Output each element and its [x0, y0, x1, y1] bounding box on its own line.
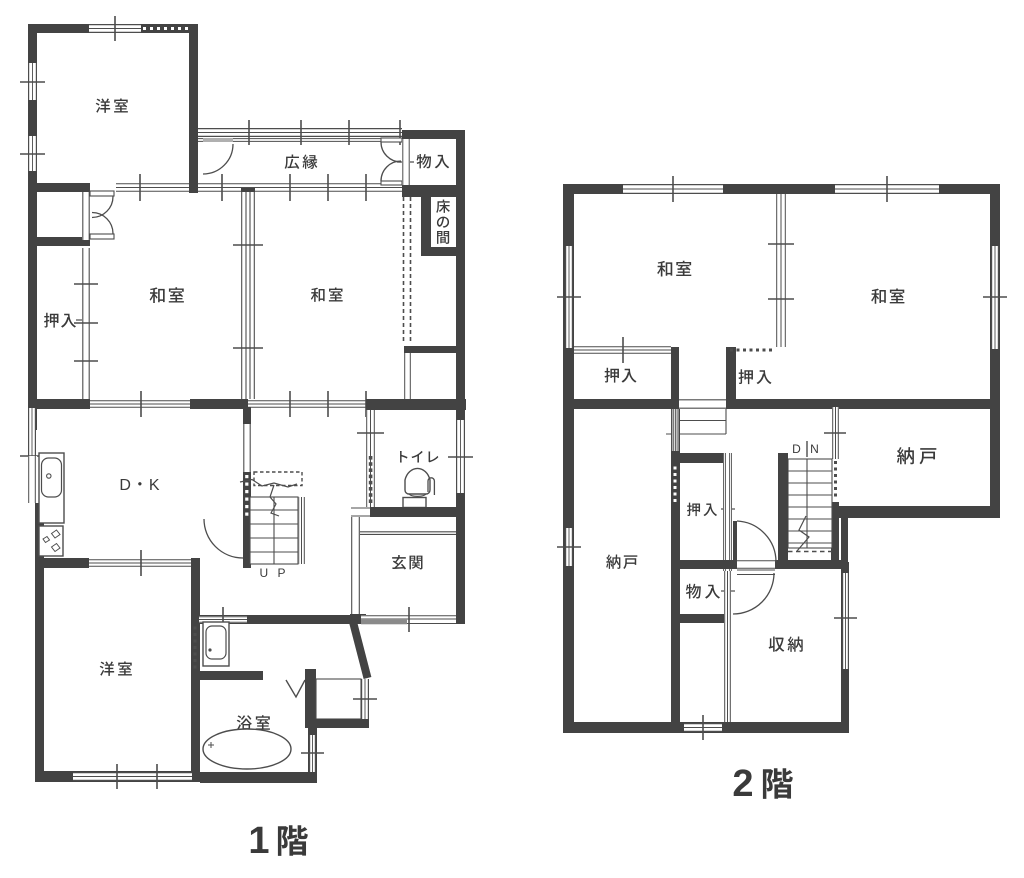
svg-text:D・K: D・K	[119, 477, 160, 494]
svg-text:U P: U P	[259, 566, 288, 580]
svg-text:1: 1	[248, 820, 269, 862]
svg-text:2: 2	[732, 763, 753, 805]
